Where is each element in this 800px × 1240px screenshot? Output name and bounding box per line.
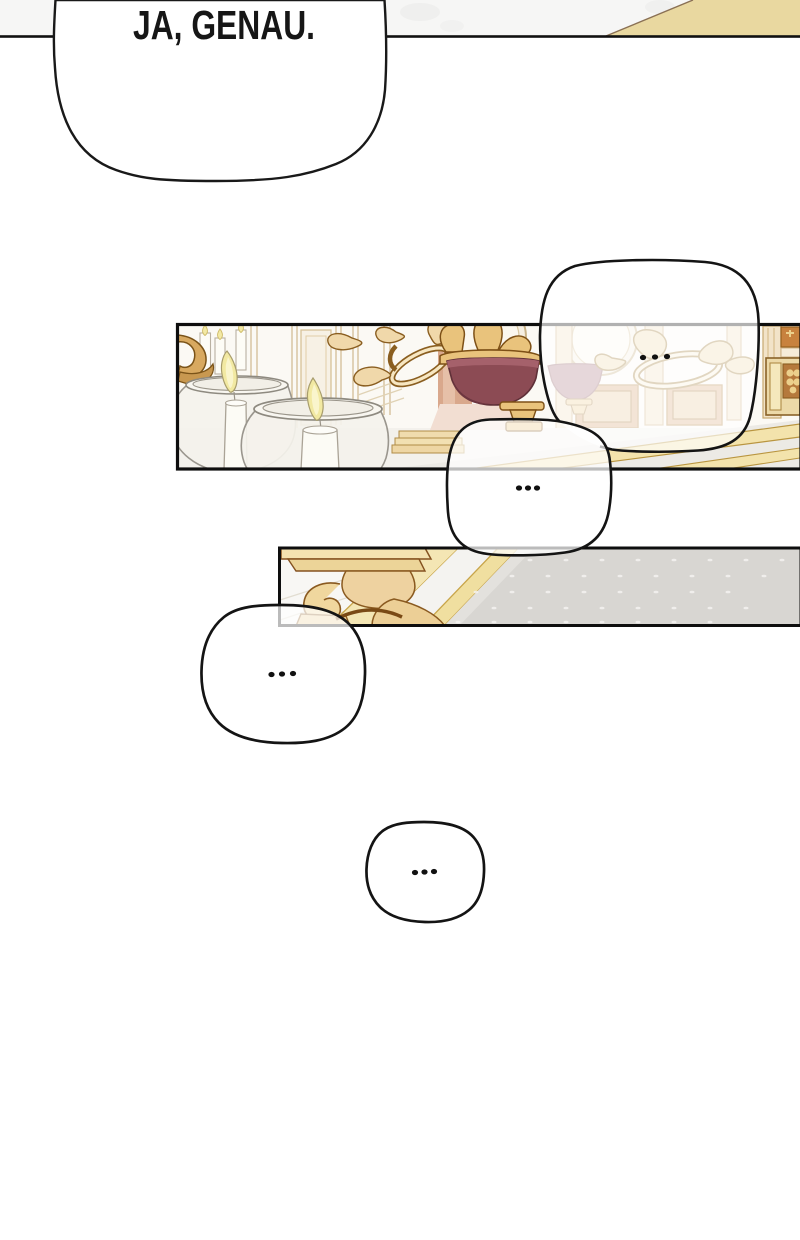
svg-text:JA, GENAU.: JA, GENAU. bbox=[133, 4, 315, 49]
